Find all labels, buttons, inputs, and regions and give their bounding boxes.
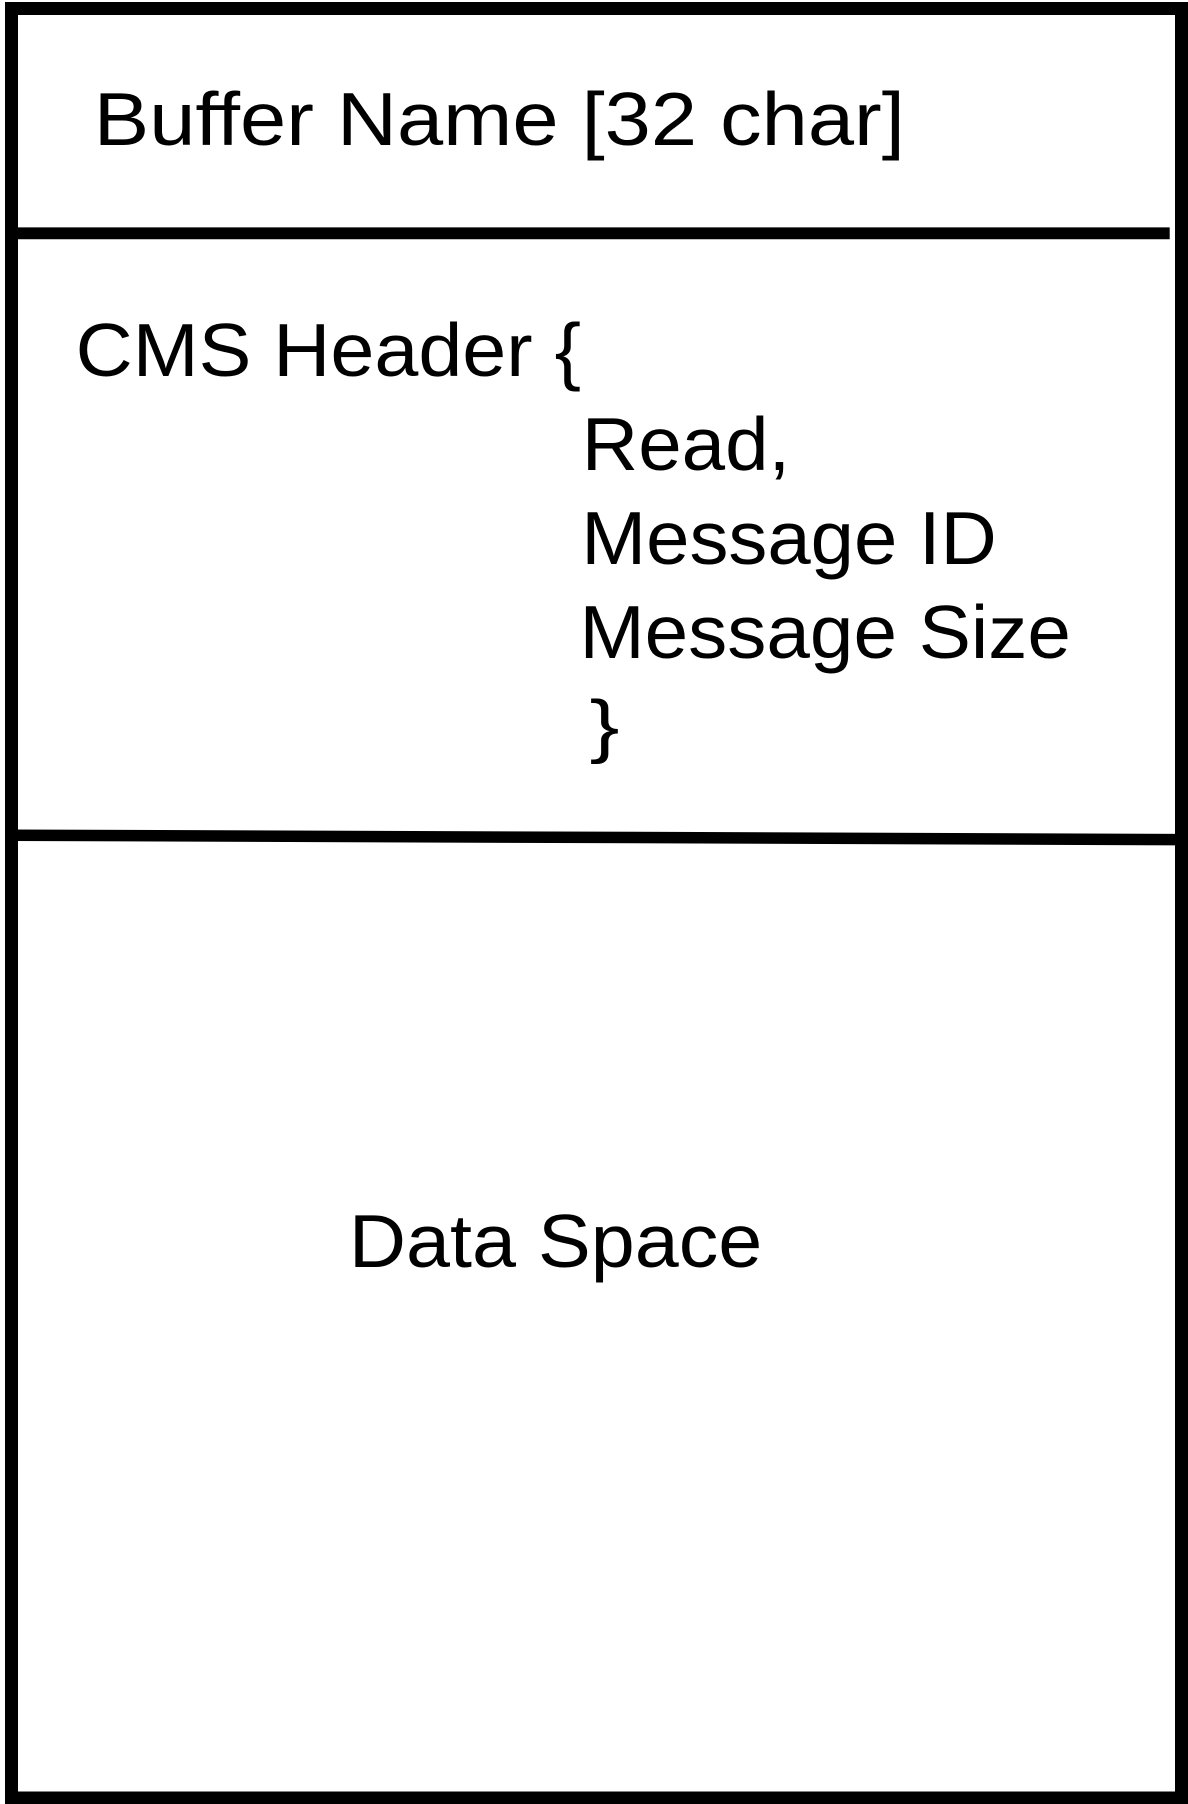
svg-text:Message Size: Message Size [580,591,1071,675]
svg-text:}: } [590,686,620,765]
svg-text:Data Space: Data Space [349,1200,762,1284]
svg-text:Read,: Read, [582,403,790,487]
svg-text:Buffer Name [32 char]: Buffer Name [32 char] [94,78,905,162]
svg-text:Message ID: Message ID [581,497,996,581]
svg-text:CMS Header {: CMS Header { [76,309,581,393]
